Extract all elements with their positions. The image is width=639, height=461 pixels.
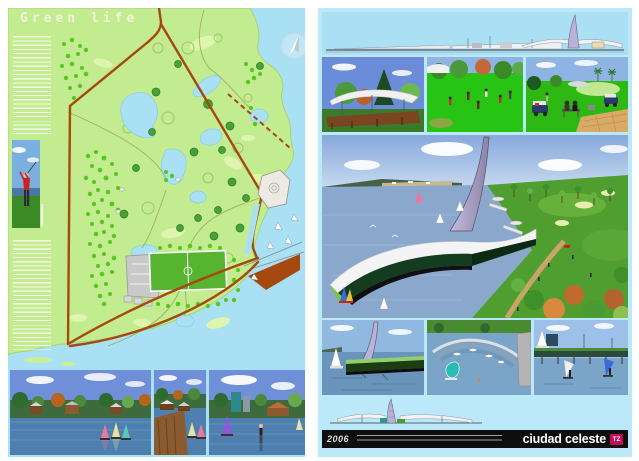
description-text-block-2 <box>13 236 51 350</box>
distant-building <box>546 334 558 346</box>
elevation-drawing-bottom <box>322 397 628 428</box>
distant-structure <box>568 81 588 87</box>
pier-wall <box>517 332 531 386</box>
spire-building-render <box>322 320 424 395</box>
waterfront-render-3 <box>209 370 305 455</box>
waterfront-render-1 <box>10 370 151 455</box>
renders-panel: 2006 ciudad celeste TZ <box>318 8 632 457</box>
bunker <box>575 202 593 209</box>
credit-bar: 2006 ciudad celeste TZ <box>322 430 628 448</box>
presentation-board: Green life <box>0 0 639 461</box>
tz-logo: TZ <box>610 434 623 445</box>
person-figure <box>259 424 263 451</box>
compass-icon <box>282 34 305 58</box>
golfer-photo <box>12 140 40 228</box>
main-perspective-render <box>322 135 628 318</box>
lawn-people-render <box>427 57 523 132</box>
golf-course-render <box>526 57 628 132</box>
year-label: 2006 <box>327 434 349 444</box>
photo-caption <box>41 204 43 226</box>
waterfront-render-2 <box>154 370 206 455</box>
canopy-pavilion-render <box>322 57 424 132</box>
windsurf-bridge-render <box>534 320 628 395</box>
brand-title: ciudad celeste <box>523 432 606 446</box>
red-car <box>564 245 570 248</box>
marina-aerial-render <box>427 320 531 395</box>
elevation-drawing-top <box>322 12 628 55</box>
credit-text-lines <box>357 435 515 444</box>
teal-building <box>231 392 241 412</box>
panel-title: Green life <box>20 11 138 26</box>
masterplan-panel: Green life <box>8 8 305 457</box>
trash-bin <box>588 105 595 110</box>
description-text-block-1 <box>13 32 51 136</box>
